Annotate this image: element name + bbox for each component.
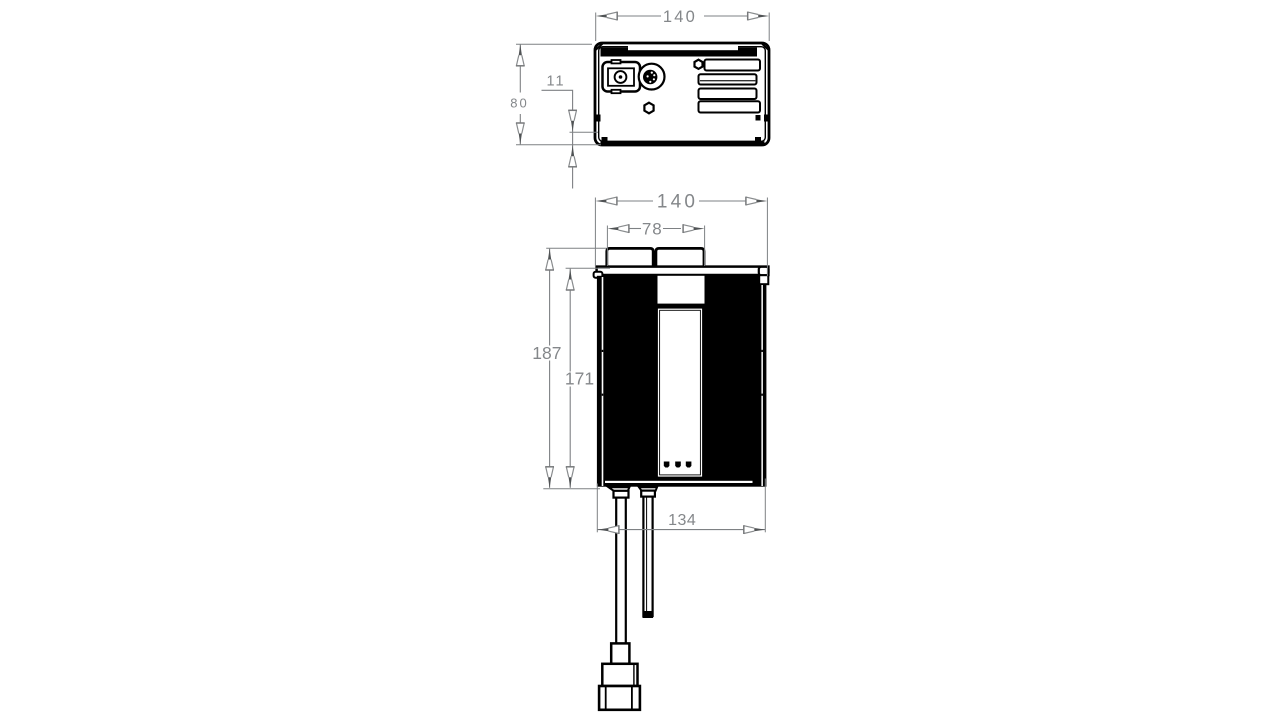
svg-text:78: 78: [642, 220, 663, 239]
svg-text:140: 140: [663, 8, 697, 26]
svg-text:134: 134: [668, 512, 696, 529]
svg-text:140: 140: [657, 191, 698, 212]
svg-text:80: 80: [510, 96, 528, 111]
svg-text:171: 171: [565, 369, 594, 389]
svg-text:11: 11: [546, 74, 565, 90]
svg-text:187: 187: [532, 343, 561, 363]
